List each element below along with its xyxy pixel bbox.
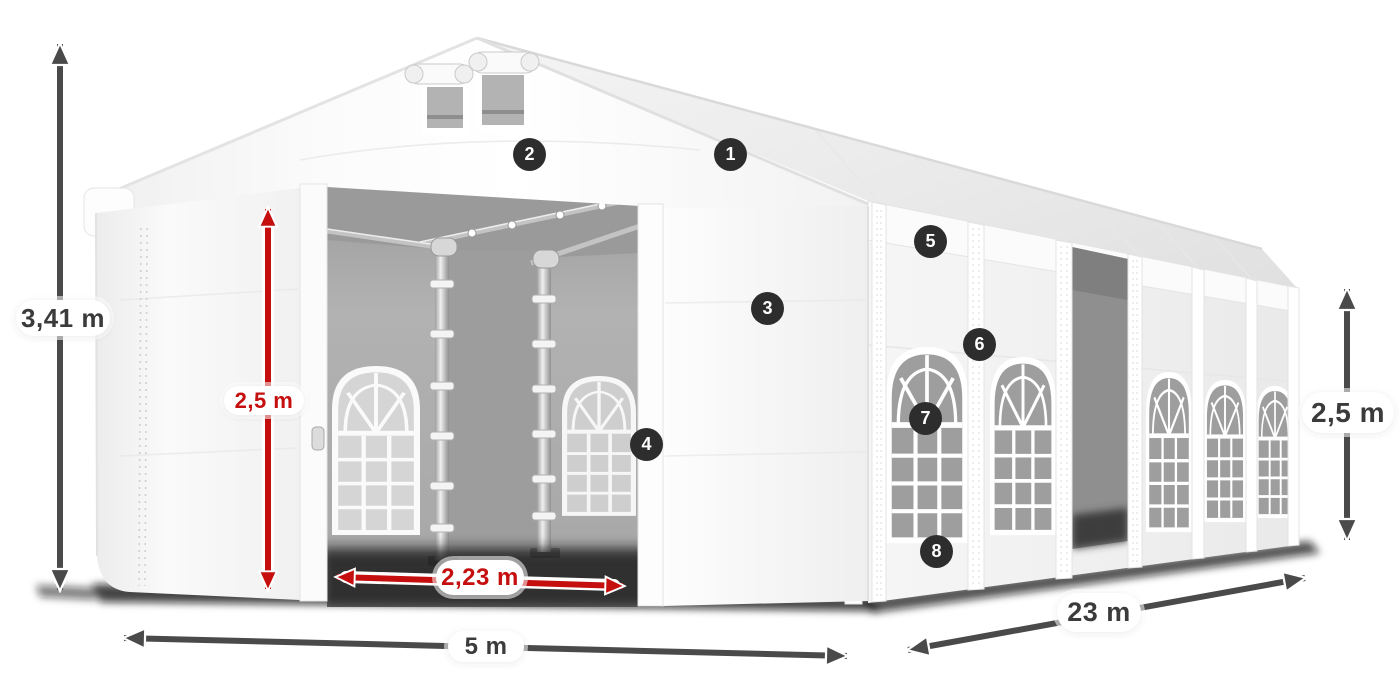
right-front-wall xyxy=(638,204,868,606)
tent-illustration xyxy=(0,0,1400,700)
callout-badge-6: 6 xyxy=(963,328,996,361)
entrance-interior xyxy=(320,186,670,610)
callout-badge-3: 3 xyxy=(751,292,784,325)
callout-badge-7: 7 xyxy=(909,402,942,435)
interior-window-right xyxy=(562,376,636,516)
callout-badge-2: 2 xyxy=(513,138,546,171)
dimension-label-entrance-width: 2,23 m xyxy=(436,560,524,595)
dimension-label-front-width: 5 m xyxy=(448,631,524,662)
dimension-label-length: 23 m xyxy=(1057,593,1141,632)
callout-badge-1: 1 xyxy=(714,138,747,171)
callout-badge-5: 5 xyxy=(914,225,947,258)
tent-dimension-diagram: 3,41 m 2,5 m 2,23 m 5 m 23 m 2,5 m 1 2 3… xyxy=(0,0,1400,700)
interior-window-left xyxy=(332,366,420,535)
callout-badge-4: 4 xyxy=(630,428,663,461)
dimension-label-side-height: 2,5 m xyxy=(1302,392,1394,433)
dimension-label-total-height: 3,41 m xyxy=(16,300,110,336)
dimension-label-entrance-height: 2,5 m xyxy=(224,386,304,415)
sliding-door-opening xyxy=(1072,247,1128,549)
door-handle xyxy=(312,427,324,450)
left-door-edge-column xyxy=(300,184,327,601)
right-door-edge-column xyxy=(638,204,663,606)
callout-badge-8: 8 xyxy=(920,535,953,568)
